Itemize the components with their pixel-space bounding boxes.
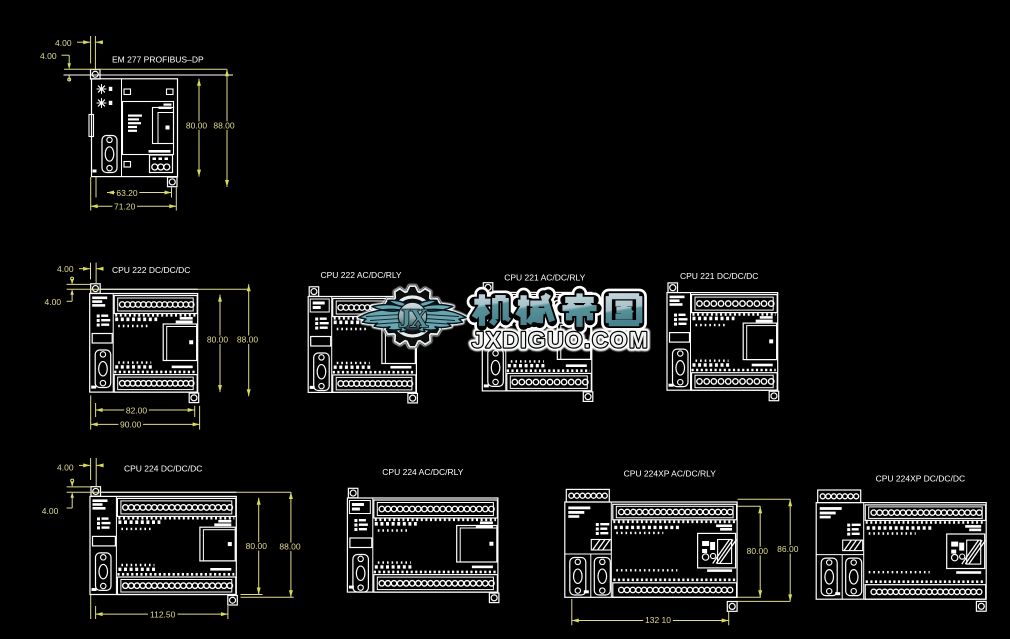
svg-text:63.20: 63.20 — [116, 188, 138, 198]
svg-text:EM 277 PROFIBUS–DP: EM 277 PROFIBUS–DP — [112, 55, 204, 65]
svg-text:4.00: 4.00 — [57, 264, 74, 274]
svg-text:CPU 224XP DC/DC/DC: CPU 224XP DC/DC/DC — [876, 474, 966, 484]
svg-text:80.00: 80.00 — [186, 120, 208, 130]
svg-text:88.00: 88.00 — [279, 542, 301, 552]
svg-text:4.00: 4.00 — [42, 506, 59, 516]
svg-text:CPU 224 DC/DC/DC: CPU 224 DC/DC/DC — [124, 463, 202, 473]
svg-text:80.00: 80.00 — [207, 335, 229, 345]
svg-text:CPU 221 DC/DC/DC: CPU 221 DC/DC/DC — [680, 271, 758, 281]
svg-text:CPU 224 AC/DC/RLY: CPU 224 AC/DC/RLY — [382, 467, 463, 477]
svg-text:4.00: 4.00 — [57, 463, 74, 473]
svg-text:112.50: 112.50 — [150, 609, 176, 619]
svg-text:88.00: 88.00 — [213, 120, 235, 130]
svg-text:4.00: 4.00 — [40, 51, 57, 61]
svg-text:CPU 222 DC/DC/DC: CPU 222 DC/DC/DC — [112, 265, 190, 275]
svg-text:JXDIGUO.COM: JXDIGUO.COM — [472, 328, 650, 353]
svg-text:82.00: 82.00 — [126, 405, 148, 415]
svg-text:80.00: 80.00 — [747, 546, 769, 556]
svg-text:CPU 222 AC/DC/RLY: CPU 222 AC/DC/RLY — [321, 270, 402, 280]
svg-text:JX: JX — [398, 304, 429, 333]
svg-text:71.20: 71.20 — [114, 201, 136, 211]
svg-text:CPU 221 AC/DC/RLY: CPU 221 AC/DC/RLY — [504, 273, 585, 283]
svg-text:132 10: 132 10 — [645, 615, 671, 625]
svg-text:90.00: 90.00 — [120, 420, 142, 430]
svg-text:88.00: 88.00 — [237, 335, 259, 345]
svg-text:CPU 224XP AC/DC/RLY: CPU 224XP AC/DC/RLY — [624, 469, 717, 479]
svg-text:4.00: 4.00 — [45, 297, 62, 307]
svg-text:86.00: 86.00 — [777, 544, 799, 554]
svg-text:80.00: 80.00 — [246, 541, 268, 551]
svg-text:4.00: 4.00 — [55, 38, 72, 48]
